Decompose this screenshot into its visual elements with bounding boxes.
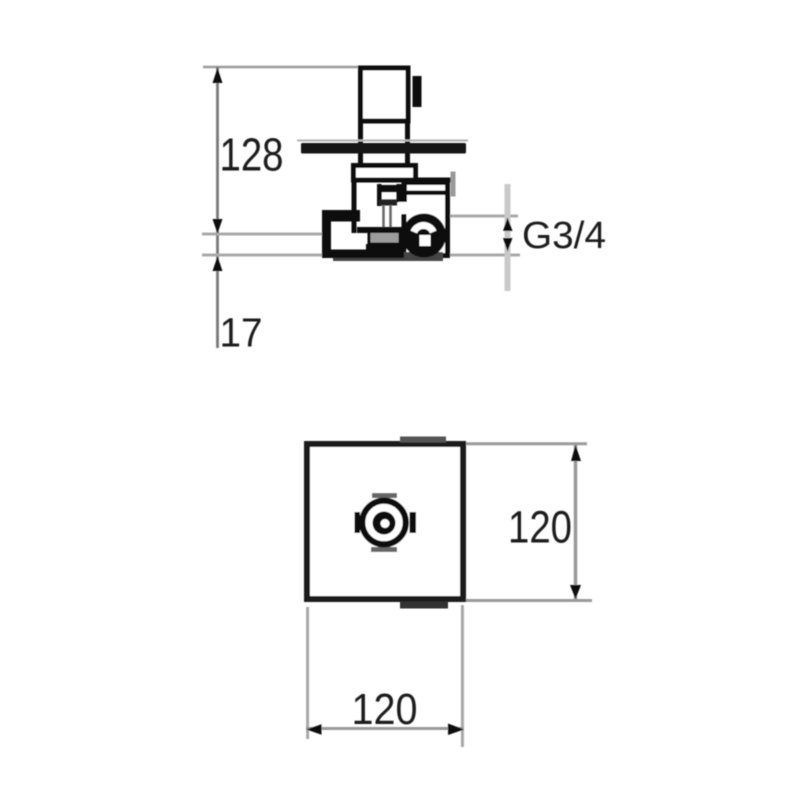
- svg-text:17: 17: [220, 310, 263, 356]
- svg-text:128: 128: [220, 129, 284, 181]
- svg-text:G3/4: G3/4: [522, 215, 606, 257]
- svg-text:120: 120: [352, 685, 418, 734]
- svg-text:120: 120: [508, 502, 572, 553]
